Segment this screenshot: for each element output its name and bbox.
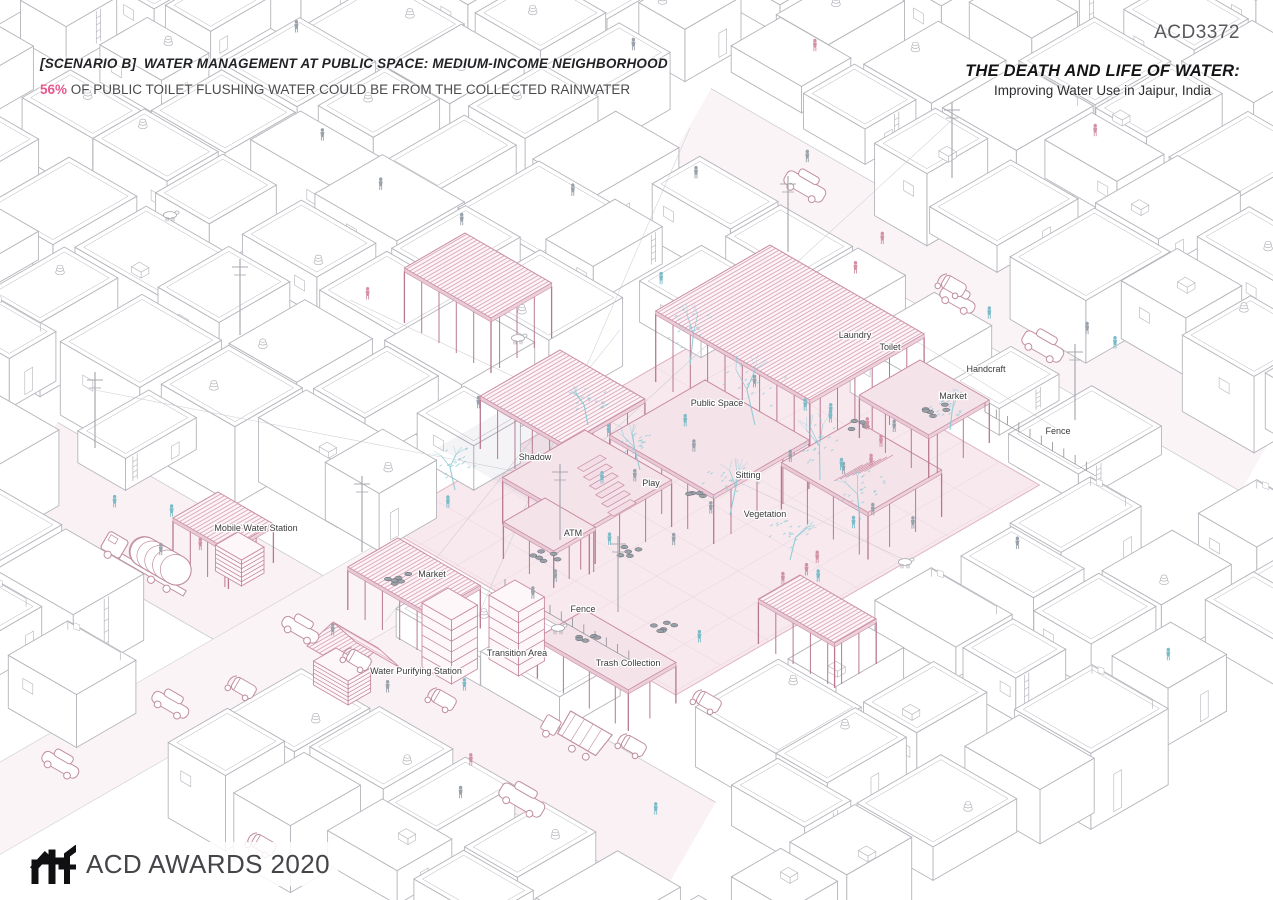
map-label-play: Play (642, 478, 660, 488)
footer: ACD AWARDS 2020 (28, 842, 338, 886)
presentation-board: LaundryToiletHandcraftMarketFencePublic … (0, 0, 1273, 900)
map-label-trash-collection: Trash Collection (596, 658, 661, 668)
map-label-shadow: Shadow (519, 452, 552, 462)
map-label-transition-area: Transition Area (487, 648, 547, 658)
map-label-vegetation: Vegetation (744, 509, 787, 519)
award-title: ACD AWARDS 2020 (86, 849, 330, 880)
map-label-sitting: Sitting (735, 470, 760, 480)
map-label-market: Market (418, 569, 446, 579)
board-code: ACD3372 (1154, 22, 1240, 44)
map-label-toilet: Toilet (879, 342, 901, 352)
axonometric-drawing: LaundryToiletHandcraftMarketFencePublic … (0, 0, 1273, 900)
map-label-mobile-water-station: Mobile Water Station (214, 523, 297, 533)
statistic-text: OF PUBLIC TOILET FLUSHING WATER COULD BE… (67, 82, 630, 97)
map-label-atm: ATM (564, 528, 582, 538)
map-label-water-purifying-station: Water Purifying Station (370, 666, 462, 676)
project-subtitle: Improving Water Use in Jaipur, India (965, 83, 1240, 98)
title-block: THE DEATH AND LIFE OF WATER: Improving W… (965, 62, 1240, 98)
map-label-public-space: Public Space (691, 398, 744, 408)
map-label-handcraft: Handcraft (966, 364, 1006, 374)
map-label-fence: Fence (570, 604, 595, 614)
statistic-value: 56% (40, 82, 67, 97)
rtf-logo (30, 844, 76, 884)
project-title: THE DEATH AND LIFE OF WATER: (965, 62, 1240, 81)
statistic-line: 56% OF PUBLIC TOILET FLUSHING WATER COUL… (40, 82, 630, 97)
map-label-laundry: Laundry (839, 330, 872, 340)
map-label-fence: Fence (1045, 426, 1070, 436)
map-label-market: Market (939, 391, 967, 401)
scenario-heading: [SCENARIO B] WATER MANAGEMENT AT PUBLIC … (40, 56, 668, 71)
